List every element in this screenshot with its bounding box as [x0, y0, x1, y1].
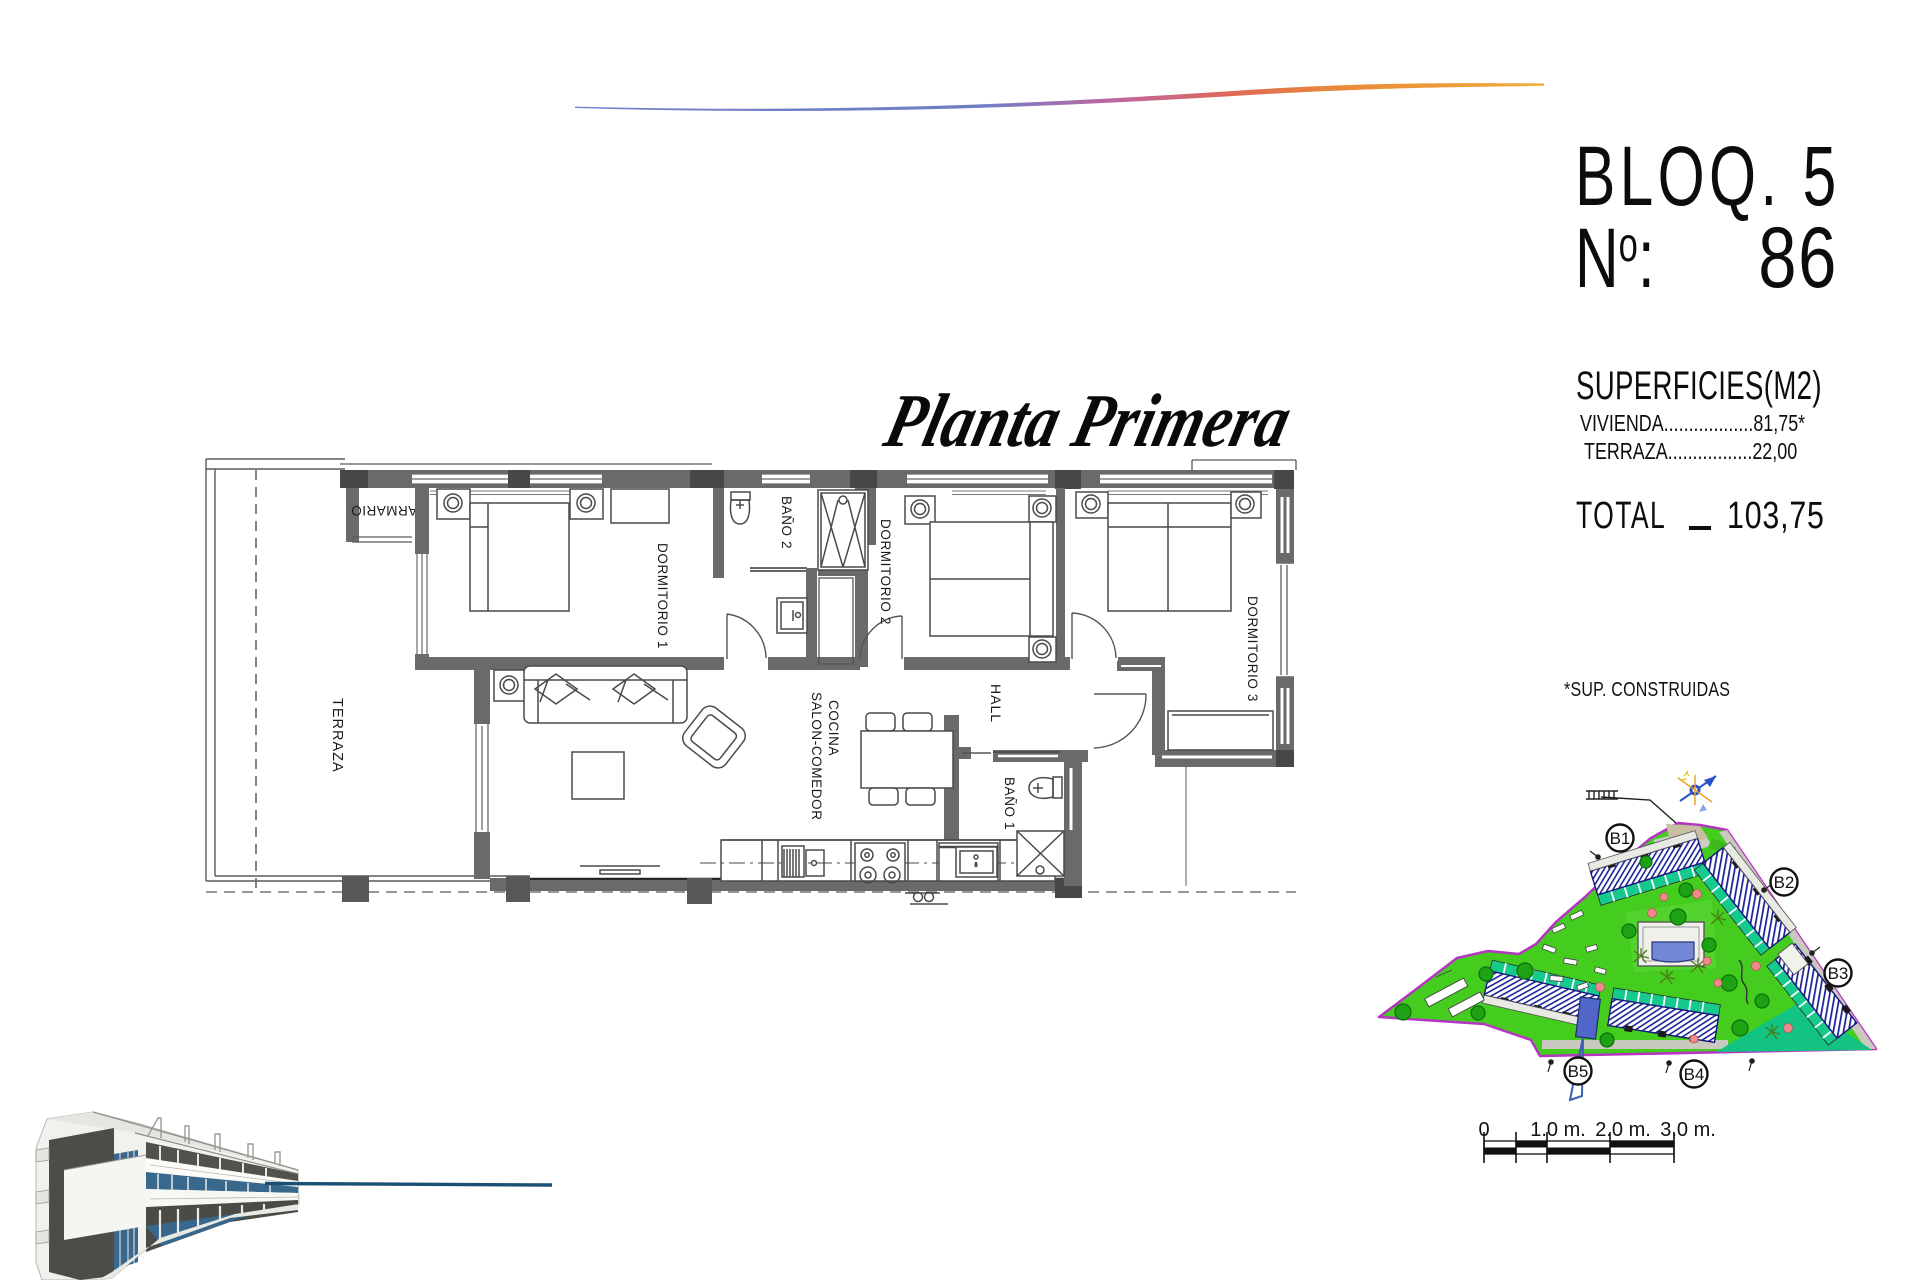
svg-text:SALON-COMEDOR: SALON-COMEDOR — [809, 692, 824, 821]
svg-text:*SUP. CONSTRUIDAS: *SUP. CONSTRUIDAS — [1564, 677, 1730, 700]
svg-text:2.0 m.: 2.0 m. — [1595, 1119, 1651, 1141]
svg-text:0: 0 — [1478, 1119, 1489, 1141]
svg-text:TOTAL: TOTAL — [1576, 493, 1666, 536]
svg-text:DORMITORIO 1: DORMITORIO 1 — [655, 543, 670, 649]
svg-text:VIVIENDA..................81,7: VIVIENDA..................81,75* — [1580, 411, 1805, 437]
svg-text:B3: B3 — [1828, 964, 1849, 983]
svg-text:1.0 m.: 1.0 m. — [1530, 1119, 1586, 1141]
svg-text:SUPERFICIES(M2): SUPERFICIES(M2) — [1576, 364, 1822, 408]
svg-text:3.0 m.: 3.0 m. — [1660, 1119, 1716, 1141]
svg-text:ARMARIO: ARMARIO — [351, 503, 418, 518]
svg-text:TERRAZA.................22,00: TERRAZA.................22,00 — [1584, 439, 1797, 465]
svg-text:Planta Primera: Planta Primera — [876, 380, 1299, 463]
svg-text:103,75: 103,75 — [1727, 495, 1825, 537]
svg-text:86: 86 — [1758, 210, 1838, 306]
svg-text:BAÑO 1: BAÑO 1 — [1002, 777, 1017, 830]
svg-text:BAÑO 2: BAÑO 2 — [779, 496, 794, 549]
svg-text:DORMITORIO 3: DORMITORIO 3 — [1245, 596, 1260, 702]
svg-text:B2: B2 — [1774, 873, 1795, 892]
svg-text:TERRAZA: TERRAZA — [329, 698, 345, 773]
svg-text:B5: B5 — [1568, 1062, 1589, 1081]
svg-text:COCINA: COCINA — [826, 700, 841, 756]
svg-text:HALL: HALL — [988, 684, 1004, 723]
svg-text:B4: B4 — [1684, 1065, 1705, 1084]
svg-text:B1: B1 — [1610, 829, 1631, 848]
svg-text:No:: No: — [1575, 211, 1655, 305]
svg-text:DORMITORIO 2: DORMITORIO 2 — [878, 519, 893, 625]
